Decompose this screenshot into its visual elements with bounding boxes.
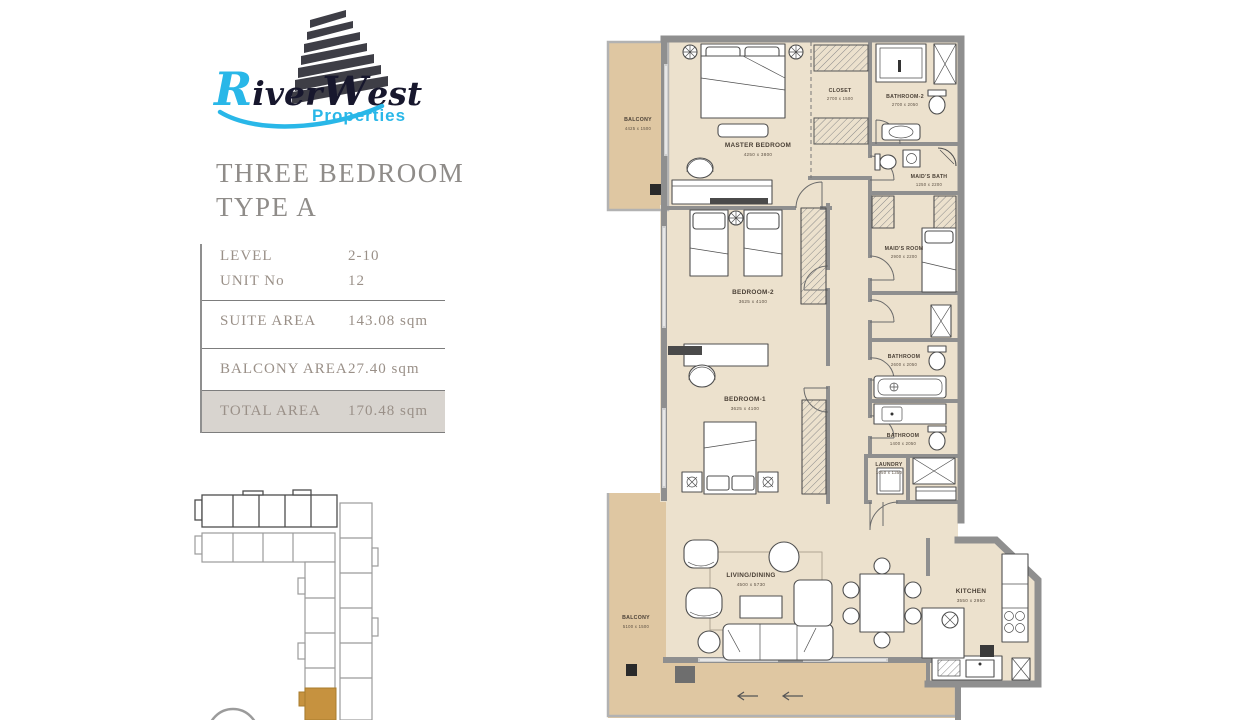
page-title-line2: TYPE A xyxy=(216,190,464,224)
key-plan-second-band xyxy=(195,533,335,562)
room-dims: 4250 x 3800 xyxy=(744,152,773,157)
room-label-bathroom: BATHROOM xyxy=(888,354,921,360)
spec-row-level: LEVEL 2-10 xyxy=(202,244,445,269)
spec-value: 170.48 sqm xyxy=(348,403,428,420)
room-label-maids-room: MAID'S ROOM xyxy=(885,246,924,252)
room-label-bedroom-2: BEDROOM-2 xyxy=(732,289,774,296)
spec-label: TOTAL AREA xyxy=(220,403,348,420)
key-plan xyxy=(193,488,381,720)
floor-plan: BALCONY 4425 x 1500 MASTER BEDROOM 4250 … xyxy=(598,28,1043,720)
room-label-kitchen: KITCHEN xyxy=(956,588,987,595)
spec-table: LEVEL 2-10 UNIT No 12 SUITE AREA 143.08 … xyxy=(200,244,445,433)
brand-subtitle: Properties xyxy=(312,106,406,126)
room-label-laundry: LAUNDRY xyxy=(875,462,903,468)
room-dims: 1050 x 1350 xyxy=(876,470,903,475)
spec-value: 12 xyxy=(348,273,365,290)
room-label-bedroom-1: BEDROOM-1 xyxy=(724,396,766,403)
room-dims: 1250 x 2200 xyxy=(916,182,943,187)
room-dims: 4425 x 1500 xyxy=(625,126,652,131)
room-dims: 2700 x 2050 xyxy=(892,102,919,107)
room-dims: 3550 x 2950 xyxy=(957,598,986,603)
room-label-master-bedroom: MASTER BEDROOM xyxy=(725,142,791,149)
spec-label: LEVEL xyxy=(220,248,348,265)
room-label-bathroom-2: BATHROOM-2 xyxy=(886,94,924,100)
page-title-line1: THREE BEDROOM xyxy=(216,156,464,190)
spec-row-suite-area: SUITE AREA 143.08 sqm xyxy=(202,301,445,342)
room-dims: 4500 x 5730 xyxy=(737,582,766,587)
room-dims: 3625 x 4100 xyxy=(739,299,768,304)
key-plan-highlighted-unit xyxy=(299,688,336,720)
spec-value: 143.08 sqm xyxy=(348,313,428,330)
room-label-living-dining: LIVING/DINING xyxy=(726,572,775,579)
logo: RiverWest Properties xyxy=(214,0,429,142)
spec-label: UNIT No xyxy=(220,273,348,290)
room-dims: 2600 x 2050 xyxy=(891,362,918,367)
spec-value: 27.40 sqm xyxy=(348,361,420,378)
spec-row-unit: UNIT No 12 xyxy=(202,269,445,294)
spec-row-total-area: TOTAL AREA 170.48 sqm xyxy=(202,390,445,433)
spec-value: 2-10 xyxy=(348,248,380,265)
spec-label: BALCONY AREA xyxy=(220,361,348,378)
room-dims: 2700 x 1500 xyxy=(827,96,854,101)
spec-row-balcony-area: BALCONY AREA 27.40 sqm xyxy=(202,349,445,390)
room-dims: 2900 x 2200 xyxy=(891,254,918,259)
key-plan-compass-circle xyxy=(208,709,258,720)
room-label-balcony-top: BALCONY xyxy=(624,117,652,123)
room-label-closet: CLOSET xyxy=(829,88,852,94)
room-dims: 5100 x 1500 xyxy=(623,624,650,629)
room-label-maids-bath: MAID'S BATH xyxy=(911,174,948,180)
room-label-balcony-bottom: BALCONY xyxy=(622,615,650,621)
room-dims: 1400 x 2050 xyxy=(890,441,917,446)
spec-label: SUITE AREA xyxy=(220,313,348,330)
room-label-bathroom-small: BATHROOM xyxy=(887,433,920,439)
page: RiverWest Properties THREE BEDROOM TYPE … xyxy=(0,0,1240,720)
page-title: THREE BEDROOM TYPE A xyxy=(216,156,464,224)
key-plan-top-wing xyxy=(195,490,337,527)
room-dims: 3625 x 4100 xyxy=(731,406,760,411)
